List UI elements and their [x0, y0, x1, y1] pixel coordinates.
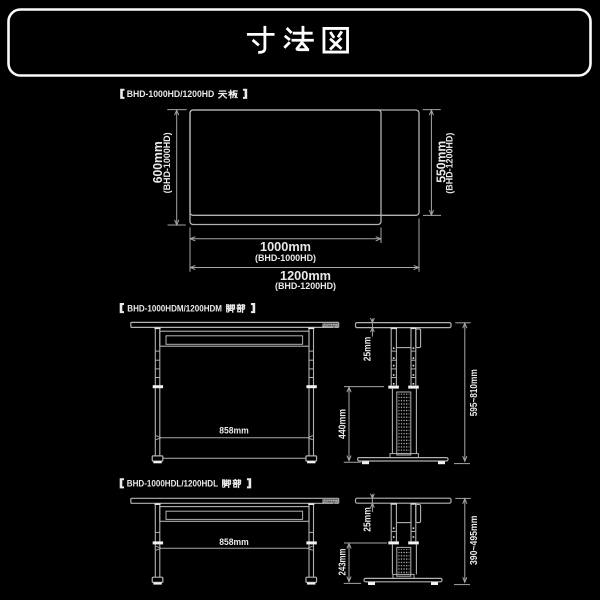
svg-text:440mm: 440mm	[337, 409, 348, 439]
svg-text:595~810mm: 595~810mm	[469, 369, 480, 416]
svg-text:BHD-1000HD/1200HD: BHD-1000HD/1200HD	[127, 88, 215, 99]
svg-text:BHD-1000HDL/1200HDL: BHD-1000HDL/1200HDL	[127, 478, 218, 489]
svg-text:(BHD-1000HD): (BHD-1000HD)	[162, 132, 172, 193]
svg-text:(BHD-1200HD): (BHD-1200HD)	[445, 133, 455, 194]
svg-text:hidakagu: hidakagu	[323, 500, 338, 504]
svg-text:BHD-1000HDM/1200HDM: BHD-1000HDM/1200HDM	[127, 303, 222, 314]
svg-text:25mm: 25mm	[362, 507, 373, 532]
svg-text:390~495mm: 390~495mm	[469, 515, 480, 565]
svg-text:(BHD-1000HD): (BHD-1000HD)	[255, 253, 316, 263]
svg-text:(BHD-1200HD): (BHD-1200HD)	[275, 281, 336, 291]
svg-text:1000mm: 1000mm	[260, 239, 311, 254]
svg-text:243mm: 243mm	[337, 548, 348, 575]
svg-text:858mm: 858mm	[219, 537, 249, 547]
svg-text:hidakagu: hidakagu	[323, 324, 338, 328]
svg-text:25mm: 25mm	[362, 337, 373, 362]
svg-text:858mm: 858mm	[219, 426, 249, 436]
